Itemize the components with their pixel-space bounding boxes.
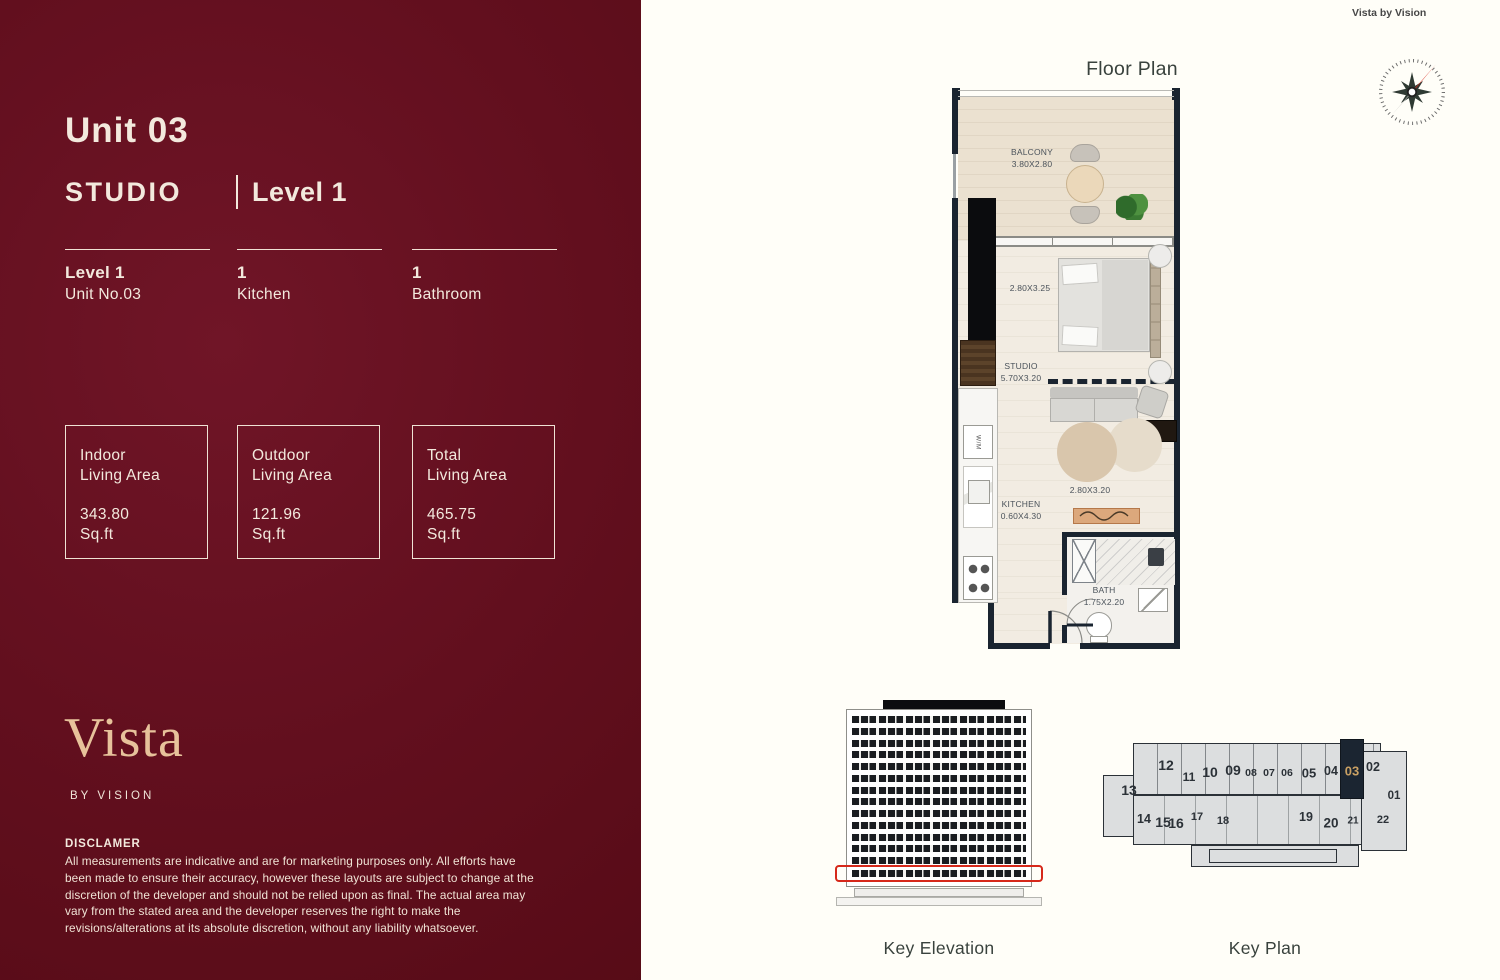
outdoor-area-label-2: Living Area [252, 466, 379, 486]
key-plan-caption: Key Plan [1157, 938, 1373, 959]
spec-bathroom-value: 1 [412, 263, 557, 283]
vista-logo: Vista [64, 706, 184, 770]
bath-label: BATH 1.75X2.20 [1072, 584, 1136, 608]
keyplan-unit: 18 [1217, 815, 1229, 827]
unit-type: STUDIO [65, 177, 182, 208]
total-area-box: Total Living Area 465.75 Sq.ft [412, 425, 555, 559]
keyplan-unit-highlighted: 03 [1345, 764, 1359, 779]
building-roof [883, 700, 1005, 709]
outdoor-area-label-1: Outdoor [252, 446, 379, 466]
brand-byline: BY VISION [70, 790, 154, 802]
keyplan-unit: 20 [1323, 816, 1338, 831]
keyplan-unit: 14 [1137, 812, 1151, 826]
disclaimer-heading: DISCLAMER [65, 838, 141, 850]
building-floors [852, 716, 1026, 864]
keyplan-unit: 07 [1263, 767, 1275, 779]
building-podium [854, 888, 1024, 897]
keyplan-unit: 04 [1324, 764, 1338, 778]
keyplan-unit: 09 [1225, 762, 1241, 778]
keyplan-unit: 22 [1377, 814, 1389, 826]
outdoor-area-unit: Sq.ft [252, 525, 379, 545]
total-area-label-1: Total [427, 446, 554, 466]
spec-kitchen: 1 Kitchen [237, 249, 382, 304]
watermark-brand: Vista by Vision [1352, 7, 1442, 19]
total-area-unit: Sq.ft [427, 525, 554, 545]
indoor-area-label-2: Living Area [80, 466, 207, 486]
keyplan-unit: 05 [1302, 766, 1316, 781]
key-elevation [833, 698, 1045, 910]
keyplan-unit: 10 [1202, 764, 1218, 780]
keyplan-unit: 02 [1366, 760, 1380, 774]
studio-label: STUDIO 5.70X3.20 [990, 360, 1052, 384]
keyplan-unit: 19 [1299, 810, 1313, 824]
bedroom-dim-label: 2.80X3.25 [998, 282, 1062, 294]
building-base [836, 897, 1042, 906]
door-swings [952, 88, 1180, 654]
floor-plan-title: Floor Plan [1037, 58, 1227, 81]
outdoor-area-box: Outdoor Living Area 121.96 Sq.ft [237, 425, 380, 559]
compass-icon [1374, 54, 1450, 130]
indoor-area-box: Indoor Living Area 343.80 Sq.ft [65, 425, 208, 559]
keyplan-unit: 08 [1245, 767, 1257, 779]
total-area-value: 465.75 [427, 505, 554, 525]
type-level-divider [236, 175, 238, 209]
key-elevation-caption: Key Elevation [827, 938, 1051, 959]
balcony-label: BALCONY 3.80X2.80 [992, 146, 1072, 170]
spec-bathroom: 1 Bathroom [412, 249, 557, 304]
disclaimer-body: All measurements are indicative and are … [65, 853, 543, 937]
keyplan-unit: 16 [1168, 815, 1184, 831]
keyplan-unit: 13 [1121, 782, 1137, 798]
keyplan-unit: 01 [1388, 790, 1401, 802]
kitchen-label: KITCHEN 0.60X4.30 [988, 498, 1054, 522]
unit-info-panel: Unit 03 STUDIO Level 1 Level 1 Unit No.0… [0, 0, 641, 980]
keyplan-unit: 12 [1158, 757, 1174, 773]
indoor-area-value: 343.80 [80, 505, 207, 525]
keyplan-core-inner [1209, 849, 1337, 863]
keyplan-unit: 21 [1347, 816, 1358, 827]
spec-level: Level 1 Unit No.03 [65, 249, 210, 304]
spec-bathroom-label: Bathroom [412, 286, 557, 304]
total-area-label-2: Living Area [427, 466, 554, 486]
keyplan-unit: 11 [1183, 770, 1196, 784]
key-plan: 12 11 10 09 08 07 06 05 04 03 02 01 13 1… [1103, 733, 1409, 873]
living-dim-label: 2.80X3.20 [1058, 484, 1122, 496]
level-highlight-outline [835, 865, 1043, 882]
keyplan-unit: 17 [1191, 811, 1203, 823]
spec-kitchen-value: 1 [237, 263, 382, 283]
outdoor-area-value: 121.96 [252, 505, 379, 525]
floor-plan: W/M BALCONY 3.80X2.80 2.80X3.25 STUDIO 5… [952, 88, 1180, 654]
unit-type-row: STUDIO Level 1 [65, 172, 347, 212]
keyplan-unit: 06 [1281, 767, 1293, 779]
spec-level-label: Unit No.03 [65, 286, 210, 304]
indoor-area-label-1: Indoor [80, 446, 207, 466]
unit-title: Unit 03 [65, 111, 189, 151]
indoor-area-unit: Sq.ft [80, 525, 207, 545]
unit-level: Level 1 [252, 177, 347, 208]
spec-kitchen-label: Kitchen [237, 286, 382, 304]
spec-level-value: Level 1 [65, 263, 210, 283]
